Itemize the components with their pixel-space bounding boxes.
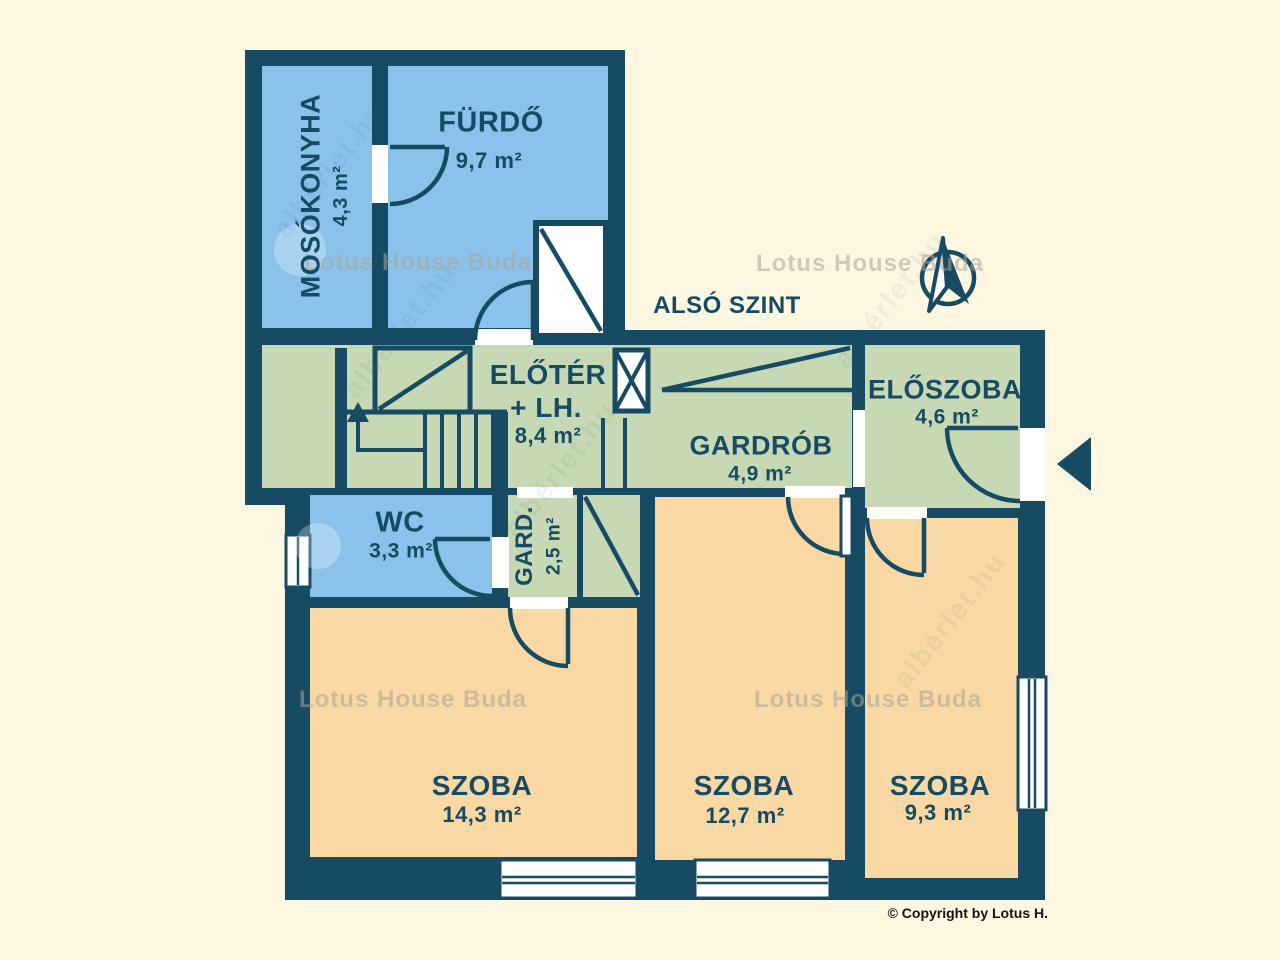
watermark: Lotus House Buda (304, 249, 532, 277)
floor-plan-stage: albérlet.hu albérlet.hu albérlet.hu albé… (0, 0, 1280, 960)
room-label-mosokonyha: MOSÓKONYHA (298, 94, 325, 299)
floor-plan-drawing (0, 0, 1280, 960)
window (1018, 677, 1046, 810)
watermark-logo-ghost (295, 523, 341, 569)
watermark: Lotus House Buda (299, 686, 527, 714)
room-label-gard: GARD. (513, 506, 537, 586)
shaft-icon (615, 350, 648, 411)
room-area-eloter: 8,4 m² (515, 425, 582, 447)
room-label-szoba-nagy: SZOBA (432, 772, 533, 800)
window (695, 860, 830, 898)
room-label-eloter-line2: + LH. (510, 394, 582, 422)
room-label-gardrob: GARDRÓB (690, 433, 833, 460)
shower-icon (536, 223, 606, 336)
room-label-furdo: FÜRDŐ (438, 109, 544, 138)
room-area-gard: 2,5 m² (545, 517, 564, 575)
window (500, 860, 637, 898)
watermark: Lotus House Buda (756, 250, 984, 278)
watermark: Lotus House Buda (754, 686, 982, 714)
room-area-szoba-nagy: 14,3 m² (442, 804, 521, 826)
room-area-mosokonyha: 4,3 m² (331, 166, 351, 227)
room-area-szoba-kozepso: 12,7 m² (705, 805, 784, 827)
room-label-eloter-line1: ELŐTÉR (490, 361, 607, 389)
copyright-text: © Copyright by Lotus H. (888, 905, 1048, 921)
room-label-szoba-kozepso: SZOBA (694, 772, 795, 800)
room-label-szoba-kis: SZOBA (890, 772, 991, 800)
room-area-wc: 3,3 m² (369, 541, 433, 562)
floor-title: ALSÓ SZINT (653, 294, 801, 318)
room-area-furdo: 9,7 m² (456, 150, 523, 172)
entrance-arrow-icon (1057, 437, 1091, 491)
room-label-eloszoba: ELŐSZOBA (868, 377, 1022, 404)
room-area-eloszoba: 4,6 m² (915, 407, 979, 428)
room-area-szoba-kis: 9,3 m² (905, 802, 972, 824)
room-area-gardrob: 4,9 m² (728, 464, 792, 485)
room-label-wc: WC (375, 509, 424, 538)
